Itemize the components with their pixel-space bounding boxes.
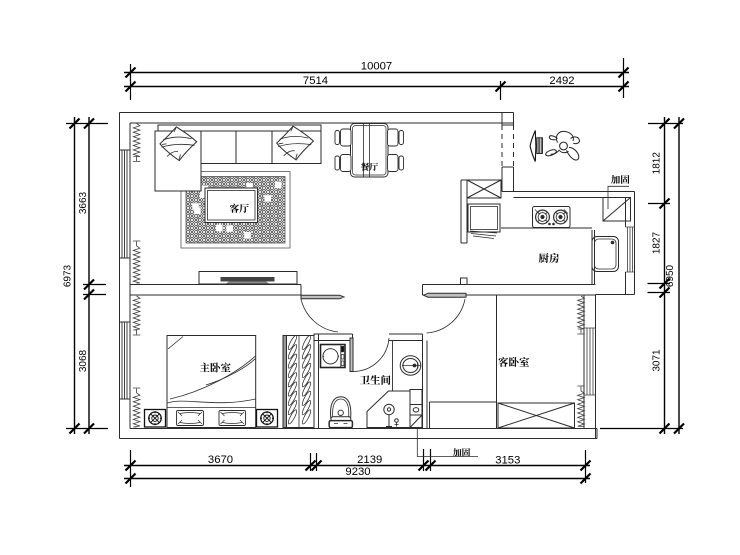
svg-text:1827: 1827 bbox=[652, 231, 663, 254]
svg-text:1812: 1812 bbox=[652, 152, 663, 175]
svg-text:6950: 6950 bbox=[665, 264, 676, 287]
svg-text:2492: 2492 bbox=[549, 75, 574, 87]
svg-text:7514: 7514 bbox=[303, 75, 328, 87]
svg-text:3068: 3068 bbox=[78, 349, 89, 372]
svg-text:3071: 3071 bbox=[652, 349, 663, 372]
svg-text:3663: 3663 bbox=[78, 191, 89, 214]
svg-text:2139: 2139 bbox=[357, 454, 382, 466]
svg-text:10007: 10007 bbox=[361, 61, 392, 73]
svg-text:3153: 3153 bbox=[495, 455, 520, 467]
svg-text:3670: 3670 bbox=[208, 454, 233, 466]
svg-text:9230: 9230 bbox=[345, 466, 370, 478]
svg-text:6973: 6973 bbox=[63, 264, 74, 287]
